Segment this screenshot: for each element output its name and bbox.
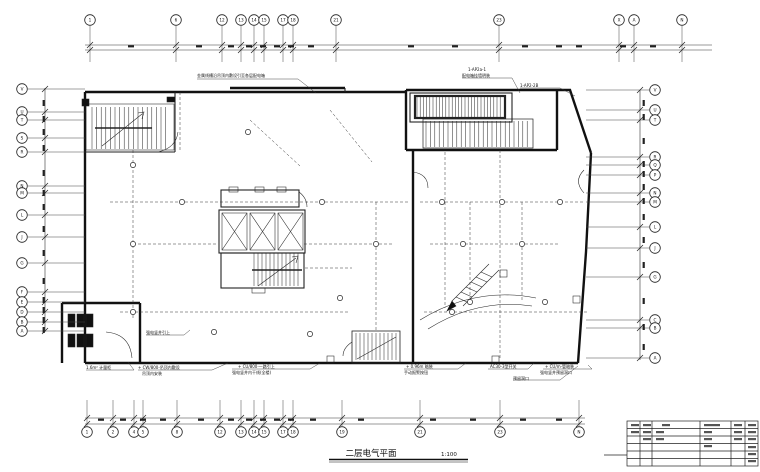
- light-fixture: [519, 241, 524, 246]
- grid-bubble-label: 4: [133, 430, 136, 435]
- dim-text-blob: [43, 170, 45, 176]
- dim-text-blob: [196, 45, 202, 47]
- title-block-text-blob: [704, 431, 712, 433]
- dim-text-blob: [43, 278, 45, 284]
- escalator-frame: [415, 96, 505, 118]
- floor-plan-canvas: 二层电气平面 1:100 161213141517182123XAN124581…: [0, 0, 760, 472]
- light-fixture: [211, 329, 216, 334]
- dim-text-blob: [643, 114, 645, 120]
- dim-text-blob: [643, 237, 645, 243]
- grid-bubble-label: 15: [261, 18, 267, 23]
- grid-bubble-label: 1: [86, 430, 89, 435]
- grid-bubble-label: 23: [496, 18, 502, 23]
- dim-text-blob: [246, 419, 252, 421]
- dim-text-blob: [43, 100, 45, 106]
- grid-bubble-label: D: [20, 310, 23, 315]
- stair-arrow: [102, 112, 396, 359]
- wiring-layer: [110, 92, 588, 360]
- annotation-text: 强电竖井内干线(全楼): [232, 369, 272, 375]
- dim-text-blob: [470, 419, 476, 421]
- grid-bubble-label: U: [653, 108, 656, 113]
- title-block-text-blob: [704, 438, 712, 440]
- light-fixture: [307, 331, 312, 336]
- dim-text-blob: [198, 419, 204, 421]
- dim-text-blob: [43, 317, 45, 323]
- annotation-text: 1.6m² 计量柜: [86, 364, 111, 370]
- dim-text-blob: [643, 198, 645, 204]
- title-block-text-blob: [643, 431, 651, 433]
- grid-bubble-label: V: [654, 88, 657, 93]
- dim-text-blob: [260, 45, 266, 47]
- junction-box: [573, 296, 580, 303]
- wall-layer: [62, 88, 591, 363]
- light-fixture: [373, 241, 378, 246]
- dim-text-blob: [576, 45, 582, 47]
- electrical-panel: [86, 334, 93, 347]
- electrical-panel: [68, 334, 75, 347]
- grid-bubble-label: R: [21, 150, 24, 155]
- grid-bubble-label: 12: [219, 18, 225, 23]
- title-block-text-blob: [748, 438, 756, 440]
- dim-text-blob: [452, 45, 458, 47]
- dim-text-blob: [358, 419, 364, 421]
- dim-text-blob: [43, 226, 45, 232]
- grid-bubble-label: M: [653, 200, 657, 205]
- title-block-text-blob: [734, 431, 742, 433]
- annotation-text: 预留洞口: [513, 375, 529, 381]
- grid-bubble-label: T: [653, 118, 657, 123]
- title-block-text-blob: [748, 446, 756, 448]
- grid-bubble-label: N: [577, 430, 580, 435]
- grid-bubble-label: 21: [417, 430, 423, 435]
- drawing-sheet: 二层电气平面 1:100 161213141517182123XAN124581…: [0, 0, 760, 472]
- grid-bubble-label: E: [21, 300, 24, 305]
- title-block-text-blob: [631, 424, 639, 426]
- dim-text-blob: [556, 419, 562, 421]
- light-fixture: [449, 309, 454, 314]
- dim-text-blob: [643, 171, 645, 177]
- dim-text-blob: [98, 419, 104, 421]
- electrical-panel: [77, 334, 84, 347]
- title-block-text-blob: [662, 424, 670, 426]
- detail-layer: [68, 97, 584, 363]
- dim-text-blob: [274, 419, 280, 421]
- dim-text-blob: [43, 116, 45, 122]
- annotation-text: 手动报警按钮: [404, 369, 428, 375]
- electrical-panel: [86, 314, 93, 327]
- electrical-panel: [77, 314, 84, 327]
- title-block-text-blob: [704, 424, 712, 426]
- light-fixture: [337, 295, 342, 300]
- annotation-text: 1-AP2-2B: [520, 83, 539, 88]
- grid-bubble-label: A: [633, 18, 636, 23]
- grid-bubble-label: M: [20, 191, 24, 196]
- dim-text-blob: [310, 419, 316, 421]
- grid-bubble-label: N: [653, 191, 656, 196]
- dim-text-blob: [643, 298, 645, 304]
- grid-bubble-label: 19: [339, 430, 345, 435]
- dim-text-blob: [128, 45, 134, 47]
- annotation-text: 强电竖井引上: [146, 329, 170, 335]
- annotation-text: + CU/m-管暗装: [545, 363, 574, 369]
- grid-bubble-label: T: [20, 118, 24, 123]
- drawing-title: 二层电气平面: [345, 448, 397, 459]
- title-block-text-blob: [734, 424, 742, 426]
- grid-bubble-label: 13: [238, 18, 244, 23]
- title-block-text-blob: [643, 438, 651, 440]
- junction-box: [500, 270, 507, 277]
- dim-text-blob: [308, 45, 314, 47]
- annotation-text: AC30-3型开关: [490, 363, 517, 369]
- dim-text-blob: [556, 45, 562, 47]
- grid-bubble-label: J: [653, 246, 655, 251]
- grid-bubble-label: A: [654, 356, 657, 361]
- dim-text-blob: [228, 45, 234, 47]
- grid-bubble-label: C: [654, 318, 657, 323]
- light-fixture: [245, 129, 250, 134]
- dim-text-blob: [650, 45, 656, 47]
- dim-text-blob: [643, 324, 645, 330]
- dim-text-blob: [288, 419, 294, 421]
- title-block-text-blob: [748, 424, 756, 426]
- annotation-text: + CW/800-吊顶内敷设: [138, 364, 180, 370]
- dim-text-blob: [643, 214, 645, 220]
- title-block-text-blob: [748, 431, 756, 433]
- dim-text-blob: [43, 327, 45, 333]
- grid-bubble-label: V: [21, 87, 24, 92]
- dim-text-blob: [43, 129, 45, 135]
- title-block-text-blob: [704, 445, 712, 447]
- light-fixture: [319, 199, 324, 204]
- light-fixture: [460, 241, 465, 246]
- dim-text-blob: [288, 45, 294, 47]
- title-block-text-blob: [712, 424, 720, 426]
- dim-text-blob: [246, 45, 252, 47]
- light-fixture: [542, 299, 547, 304]
- dim-text-blob: [43, 204, 45, 210]
- grid-bubble-label: N: [680, 18, 683, 23]
- dim-text-blob: [140, 419, 146, 421]
- column: [167, 97, 175, 102]
- dim-text-blob: [43, 297, 45, 303]
- grid-bubble-label: 6: [175, 18, 178, 23]
- dim-text-blob: [430, 419, 436, 421]
- annotation-text: + CU/800-一路引上: [238, 363, 275, 369]
- grid-bubble-label: 15: [261, 430, 267, 435]
- grid-bubble-label: 5: [142, 430, 145, 435]
- title-block-text-blob: [748, 453, 756, 455]
- title-block-text-blob: [734, 438, 742, 440]
- grid-bubble-label: 2: [112, 430, 115, 435]
- electrical-panel: [68, 314, 75, 327]
- title-block: [604, 421, 758, 466]
- title-block-text-blob: [656, 438, 664, 440]
- light-fixture: [179, 199, 184, 204]
- grid-bubble-label: 21: [333, 18, 339, 23]
- grid-bubble-label: 1: [89, 18, 92, 23]
- grid-bubble-label: G: [20, 261, 23, 266]
- annotation-text: 吊顶内安装: [142, 370, 162, 376]
- grid-bubble-label: B: [21, 320, 24, 325]
- grid-bubble-label: U: [20, 110, 23, 115]
- grid-bubble-label: B: [654, 326, 657, 331]
- dim-text-blob: [160, 419, 166, 421]
- light-fixture: [499, 199, 504, 204]
- dim-text-blob: [43, 145, 45, 151]
- dim-text-blob: [43, 190, 45, 196]
- dim-text-blob: [620, 45, 626, 47]
- dim-text-blob: [260, 419, 266, 421]
- dim-text-blob: [120, 419, 126, 421]
- dim-text-blob: [643, 161, 645, 167]
- grid-bubble-label: A: [21, 329, 24, 334]
- dim-text-blob: [408, 45, 414, 47]
- drawing-scale: 1:100: [441, 452, 457, 458]
- grid-bubble-label: 23: [497, 430, 503, 435]
- annotation-text: 强电竖井预留洞口: [540, 369, 572, 375]
- dim-text-blob: [43, 250, 45, 256]
- column: [82, 99, 89, 106]
- dim-text-blob: [643, 262, 645, 268]
- grid-bubble-label: G: [653, 275, 656, 280]
- stair-landing: [95, 128, 302, 270]
- light-fixture: [557, 199, 562, 204]
- title-block-text-blob: [631, 431, 639, 433]
- door-swing: [106, 132, 584, 358]
- grid-bubble-label: J: [20, 235, 22, 240]
- grid-bubble-label: 14: [251, 430, 257, 435]
- grid-bubble-label: S: [21, 136, 24, 141]
- dim-text-blob: [274, 45, 280, 47]
- title-block-text-blob: [748, 460, 756, 462]
- dim-text-blob: [643, 100, 645, 106]
- dim-text-blob: [228, 419, 234, 421]
- annotation-text: 金属线槽沿吊顶内敷设引至各层配电箱: [197, 72, 265, 78]
- light-fixture: [130, 162, 135, 167]
- light-fixture: [130, 241, 135, 246]
- dim-text-blob: [43, 307, 45, 313]
- grid-bubble-label: 8: [176, 430, 179, 435]
- title-block-text-blob: [656, 431, 664, 433]
- title-block-text-blob: [643, 424, 651, 426]
- dim-text-blob: [643, 344, 645, 350]
- annotation-text: 1-AP2a-1: [468, 67, 486, 72]
- light-fixture: [130, 309, 135, 314]
- grid-bubble-label: 18: [290, 430, 296, 435]
- grid-bubble-label: 12: [217, 430, 223, 435]
- annotation-text: 配电箱挂墙明装: [462, 72, 490, 78]
- grid-bubble-label: 18: [290, 18, 296, 23]
- light-fixture: [467, 299, 472, 304]
- dim-text-blob: [643, 138, 645, 144]
- grid-bubble-label: 17: [280, 430, 286, 435]
- dim-text-blob: [643, 184, 645, 190]
- grid-bubble-label: X: [618, 18, 621, 23]
- curved-ramp: [420, 264, 536, 329]
- grid-bubble-label: 17: [280, 18, 286, 23]
- annotation-text: + 0.96m 暗装: [406, 363, 433, 369]
- grid-bubble-label: 13: [238, 430, 244, 435]
- grid-bubble-label: 14: [251, 18, 257, 23]
- light-fixture: [439, 199, 444, 204]
- dim-text-blob: [522, 45, 528, 47]
- grid-bubble-label: R: [654, 155, 657, 160]
- dim-text-blob: [520, 419, 526, 421]
